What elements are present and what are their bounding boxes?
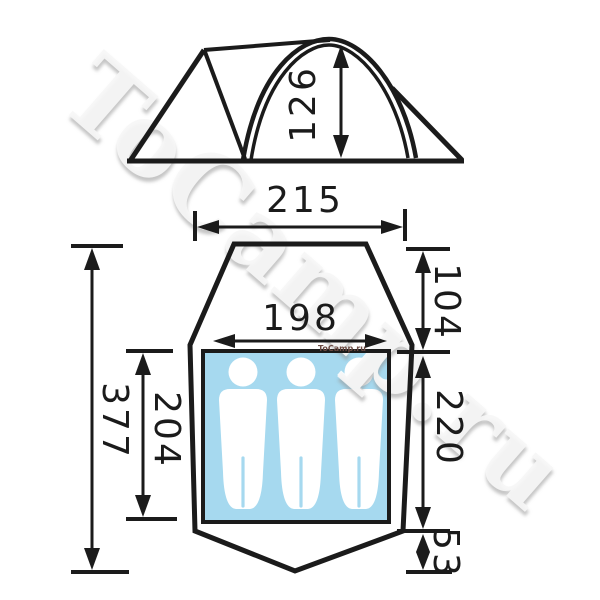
dim-label-inner-length: 204 bbox=[148, 391, 184, 469]
person-silhouette bbox=[277, 358, 325, 510]
dim-377-arrow-up bbox=[84, 248, 100, 270]
dim-126-arrow-up bbox=[333, 45, 349, 68]
dim-204-arrow-down bbox=[135, 495, 151, 517]
dome-inner-arc bbox=[251, 45, 408, 160]
watermark-small: ToCamp.ru bbox=[318, 344, 366, 353]
dim-215-arrow-right bbox=[381, 220, 403, 234]
rear-slope bbox=[392, 88, 462, 160]
person-body bbox=[219, 389, 267, 509]
dim-label-rear-depth: 53 bbox=[427, 527, 463, 579]
person-body bbox=[277, 389, 325, 509]
dim-126-arrow-down bbox=[333, 135, 349, 158]
dim-label-front-depth: 104 bbox=[428, 263, 464, 341]
person-head bbox=[229, 358, 258, 387]
dim-label-outer-width: 215 bbox=[266, 183, 344, 219]
dim-label-total-length: 377 bbox=[96, 382, 132, 460]
dim-204-arrow-up bbox=[135, 353, 151, 375]
dome-outer-arc bbox=[243, 39, 416, 160]
tent-spec-diagram: ToCamp.ru bbox=[0, 0, 600, 600]
dim-label-height: 126 bbox=[286, 65, 322, 143]
dim-220-arrow-down bbox=[415, 507, 431, 529]
dim-198-arrow-left bbox=[213, 334, 235, 348]
dim-label-inner-width: 198 bbox=[262, 301, 340, 337]
ridge-line bbox=[204, 40, 330, 50]
dim-label-inner-depth: 220 bbox=[430, 389, 466, 467]
person-head bbox=[287, 358, 316, 387]
person-silhouette bbox=[219, 358, 267, 510]
dim-377-arrow-down bbox=[84, 548, 100, 570]
